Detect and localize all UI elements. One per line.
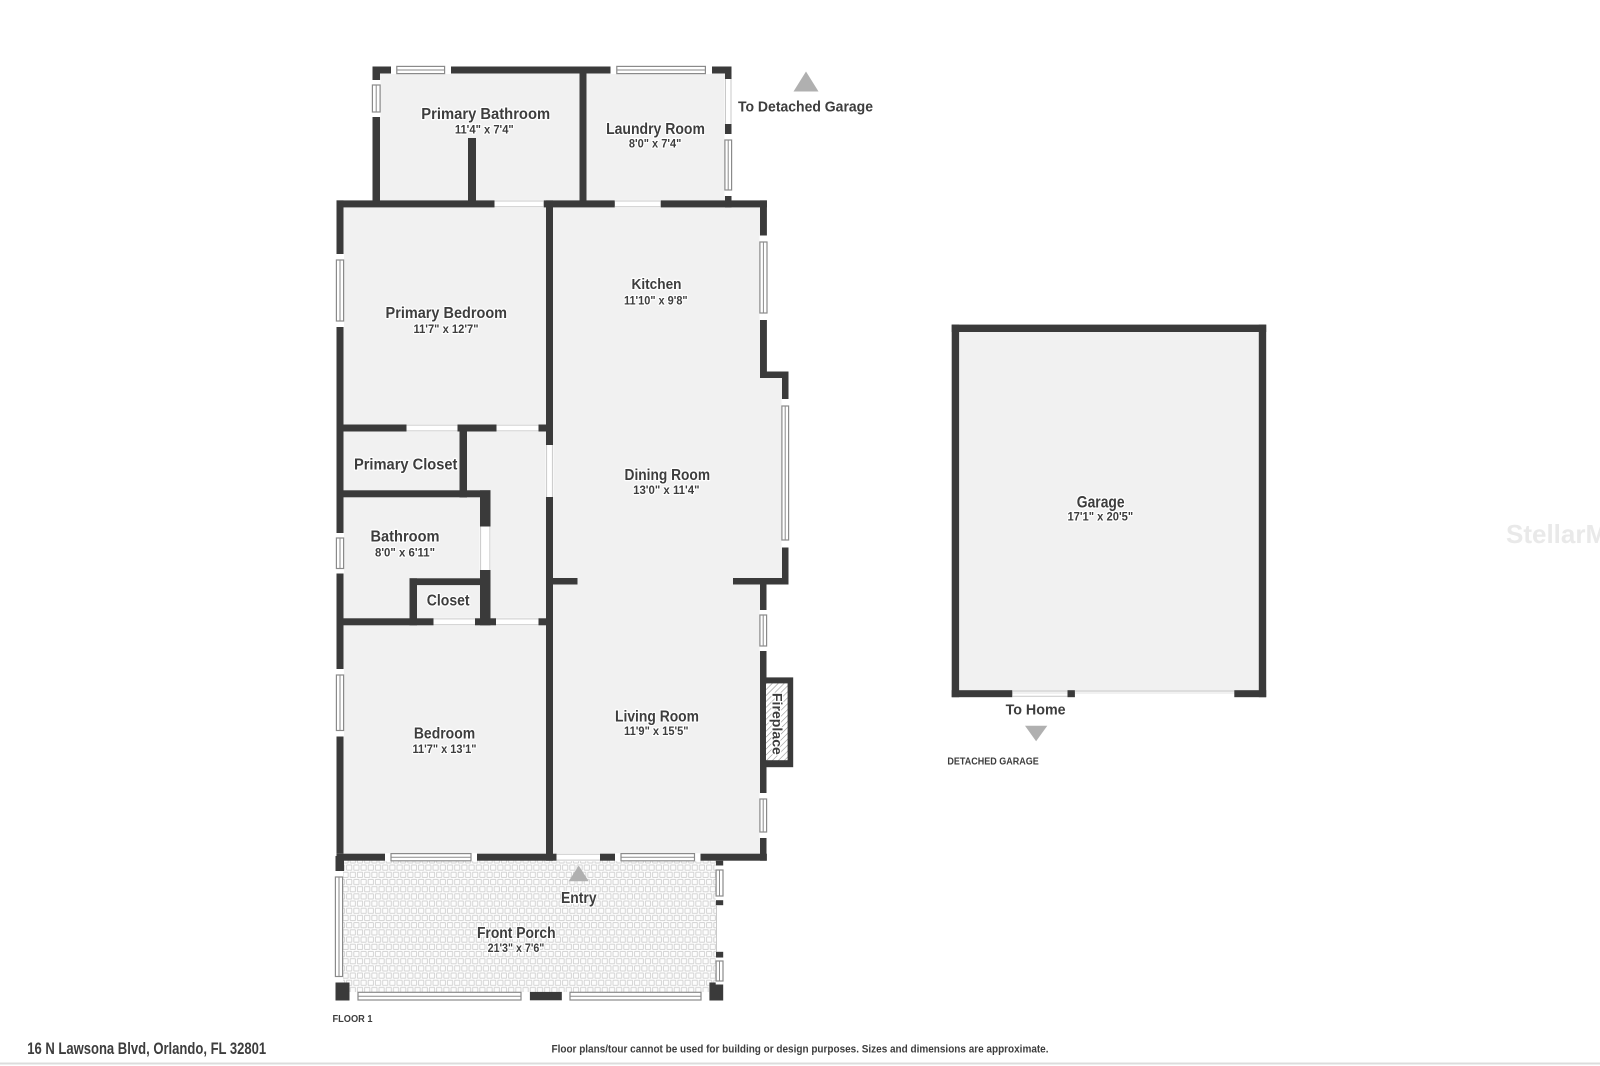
- svg-text:Closet: Closet: [427, 592, 470, 609]
- svg-text:17'1" x 20'5": 17'1" x 20'5": [1067, 510, 1133, 524]
- svg-text:Primary Closet: Primary Closet: [354, 457, 458, 474]
- svg-text:11'10" x 9'8": 11'10" x 9'8": [624, 294, 688, 308]
- svg-text:21'3" x 7'6": 21'3" x 7'6": [488, 941, 545, 955]
- svg-text:StellarMLS: StellarMLS: [1506, 519, 1600, 549]
- svg-text:16 N Lawsona Blvd, Orlando, FL: 16 N Lawsona Blvd, Orlando, FL 32801: [27, 1039, 266, 1058]
- svg-text:8'0" x 7'4": 8'0" x 7'4": [629, 137, 681, 151]
- svg-text:Kitchen: Kitchen: [632, 276, 682, 293]
- svg-text:Entry: Entry: [561, 890, 597, 907]
- svg-text:11'7" x 12'7": 11'7" x 12'7": [414, 322, 479, 336]
- svg-text:8'0" x 6'11": 8'0" x 6'11": [375, 546, 435, 560]
- svg-text:11'7" x 13'1": 11'7" x 13'1": [412, 742, 476, 756]
- svg-text:Primary Bedroom: Primary Bedroom: [386, 305, 508, 322]
- svg-text:Floor plans/tour cannot be use: Floor plans/tour cannot be used for buil…: [552, 1044, 1049, 1056]
- svg-text:Bedroom: Bedroom: [414, 725, 475, 742]
- svg-text:Front Porch: Front Porch: [477, 925, 556, 942]
- svg-text:DETACHED GARAGE: DETACHED GARAGE: [947, 757, 1039, 768]
- svg-text:Bathroom: Bathroom: [371, 529, 440, 546]
- svg-text:To Home: To Home: [1006, 702, 1066, 719]
- svg-text:11'4" x 7'4": 11'4" x 7'4": [455, 122, 514, 136]
- svg-text:FLOOR 1: FLOOR 1: [333, 1014, 373, 1025]
- svg-text:13'0" x 11'4": 13'0" x 11'4": [633, 483, 699, 497]
- svg-text:Fireplace: Fireplace: [769, 693, 784, 756]
- svg-text:Living Room: Living Room: [615, 709, 699, 726]
- svg-text:Dining Room: Dining Room: [625, 467, 711, 484]
- svg-text:Primary Bathroom: Primary Bathroom: [421, 106, 550, 123]
- svg-text:11'9" x 15'5": 11'9" x 15'5": [624, 724, 689, 738]
- svg-text:To Detached Garage: To Detached Garage: [738, 99, 873, 116]
